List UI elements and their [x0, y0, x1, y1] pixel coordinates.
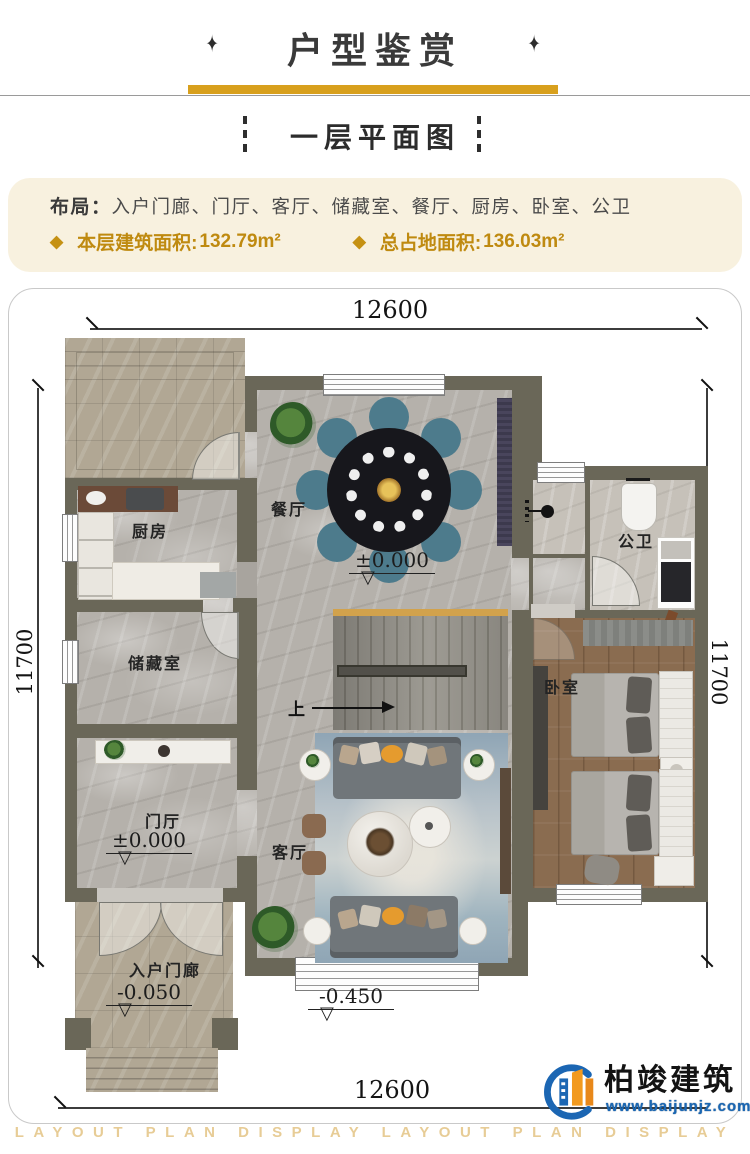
page-title: 户型鉴赏	[0, 22, 750, 74]
pillow	[427, 909, 448, 930]
pillow	[338, 744, 359, 765]
room-label-dining: 餐厅	[257, 496, 321, 520]
door-opening	[245, 432, 257, 478]
level-triangle-icon: ▽	[106, 850, 192, 866]
bedroom-rug	[583, 620, 693, 646]
divider-line	[0, 95, 750, 96]
floor-area-label: 本层建筑面积:	[77, 228, 197, 255]
room-label-kitchen: 厨房	[118, 518, 182, 542]
bed-pillow	[626, 716, 652, 754]
table-decor	[365, 827, 395, 857]
toilet	[621, 483, 657, 531]
level-triangle-icon: ▽	[349, 570, 435, 586]
pillow	[358, 904, 381, 927]
layout-line: 布局：入户门廊、门厅、客厅、储藏室、餐厅、厨房、卧室、公卫	[50, 192, 632, 219]
plant	[104, 740, 126, 760]
stool	[302, 814, 326, 838]
stair-arrow-head	[382, 701, 395, 713]
room-label-living: 客厅	[258, 839, 322, 863]
dim-line-top	[90, 328, 702, 330]
pillow	[358, 741, 381, 764]
logo-url[interactable]: www.baijunjz.com	[606, 1098, 750, 1115]
door-opening	[511, 558, 529, 610]
pillow	[405, 904, 429, 928]
elevation-marker: -0.050 ▽	[106, 980, 192, 1018]
hall-floor	[533, 558, 585, 610]
plant	[306, 754, 320, 768]
shower-valve	[525, 500, 529, 522]
sofa	[333, 737, 461, 799]
toilet-shelf	[626, 478, 650, 481]
decor-bowl	[158, 745, 170, 757]
dim-left: 11700	[13, 627, 37, 697]
side-table	[303, 917, 331, 945]
tv-console	[500, 768, 511, 894]
stove	[126, 488, 164, 510]
window	[556, 884, 642, 905]
area-line: ◆ 本层建筑面积:132.79m² ◆ 总占地面积:136.03m²	[50, 228, 565, 255]
elevation-marker: ±0.000 ▽	[349, 548, 435, 586]
diamond-icon: ◆	[50, 232, 63, 252]
land-area-label: 总占地面积:	[380, 228, 481, 255]
sparkle-icon: ✦	[528, 30, 540, 59]
shower-arm	[528, 510, 543, 512]
pillow	[426, 745, 447, 766]
kitchen-pad	[200, 572, 236, 598]
dash-ornament	[477, 116, 481, 152]
bed-pillow	[626, 676, 652, 714]
layout-value: 入户门廊、门厅、客厅、储藏室、餐厅、厨房、卧室、公卫	[112, 196, 632, 217]
room-label-bedroom: 卧室	[530, 674, 594, 698]
watermark-text: LAYOUT PLAN DISPLAY LAYOUT PLAN DISPLAY	[0, 1124, 750, 1141]
entry-steps	[86, 1048, 218, 1092]
headboard	[659, 769, 693, 857]
diamond-icon: ◆	[353, 232, 366, 252]
elevation-marker: ±0.000 ▽	[106, 828, 192, 866]
window	[537, 462, 585, 483]
layout-info-box: 布局：入户门廊、门厅、客厅、储藏室、餐厅、厨房、卧室、公卫 ◆ 本层建筑面积:1…	[8, 178, 742, 272]
plant	[252, 906, 298, 952]
sink	[86, 491, 106, 505]
headboard	[659, 671, 693, 759]
stair-handrail	[337, 665, 467, 677]
bedroom-cabinet	[654, 856, 694, 886]
shower-floor	[533, 480, 585, 554]
pillow	[382, 907, 404, 925]
room-label-bath: 公卫	[604, 528, 668, 552]
logo-building-orange2	[586, 1078, 594, 1105]
level-triangle-icon: ▽	[106, 1002, 192, 1018]
dim-line-left	[37, 388, 39, 968]
plant	[270, 402, 316, 448]
floor-area-value: 132.79m²	[199, 231, 280, 253]
bed-pillow	[626, 814, 652, 852]
pillow	[404, 742, 428, 766]
door-opening	[237, 562, 257, 598]
window	[323, 374, 445, 396]
logo-icon	[540, 1062, 602, 1122]
door-threshold	[97, 888, 223, 902]
window	[62, 640, 79, 684]
land-area-value: 136.03m²	[483, 231, 564, 253]
logo-name: 柏竣建筑	[604, 1066, 736, 1096]
floor-subtitle: 一层平面图	[0, 116, 750, 156]
stair-up-label: 上	[288, 695, 305, 720]
door-opening	[237, 790, 257, 856]
sideboard	[497, 398, 512, 546]
stair-arrow-line	[312, 707, 384, 709]
room-label-storage: 储藏室	[107, 650, 203, 674]
dim-top: 12600	[340, 296, 440, 324]
layout-label: 布局：	[50, 197, 112, 218]
plant	[470, 754, 484, 768]
dim-right: 11700	[707, 637, 731, 707]
elevation-marker: -0.450 ▽	[308, 984, 394, 1022]
pillow	[337, 908, 359, 930]
table-decor	[425, 822, 433, 830]
poster: ✦ 户型鉴赏 ✦ 一层平面图 布局：入户门廊、门厅、客厅、储藏室、餐厅、厨房、卧…	[0, 0, 750, 1154]
dim-bottom: 12600	[342, 1076, 442, 1104]
logo-building-orange	[572, 1069, 583, 1106]
sofa	[330, 896, 458, 958]
washer	[661, 562, 691, 602]
kitchen-cabinets	[78, 512, 114, 600]
door-opening	[203, 598, 233, 612]
bed-pillow	[626, 774, 652, 812]
door-threshold	[531, 604, 575, 618]
room-label-porch: 入户门廊	[120, 957, 210, 981]
stair-nosing	[333, 609, 508, 616]
side-table	[459, 917, 487, 945]
brand-logo: 柏竣建筑 www.baijunjz.com	[540, 1062, 750, 1124]
window	[62, 514, 79, 562]
porch-pillar	[212, 1018, 238, 1050]
pillow	[381, 745, 403, 763]
porch-pillar	[65, 1018, 91, 1050]
title-underline	[188, 85, 558, 94]
table-centerpiece	[377, 478, 401, 502]
level-triangle-icon: ▽	[308, 1006, 394, 1022]
